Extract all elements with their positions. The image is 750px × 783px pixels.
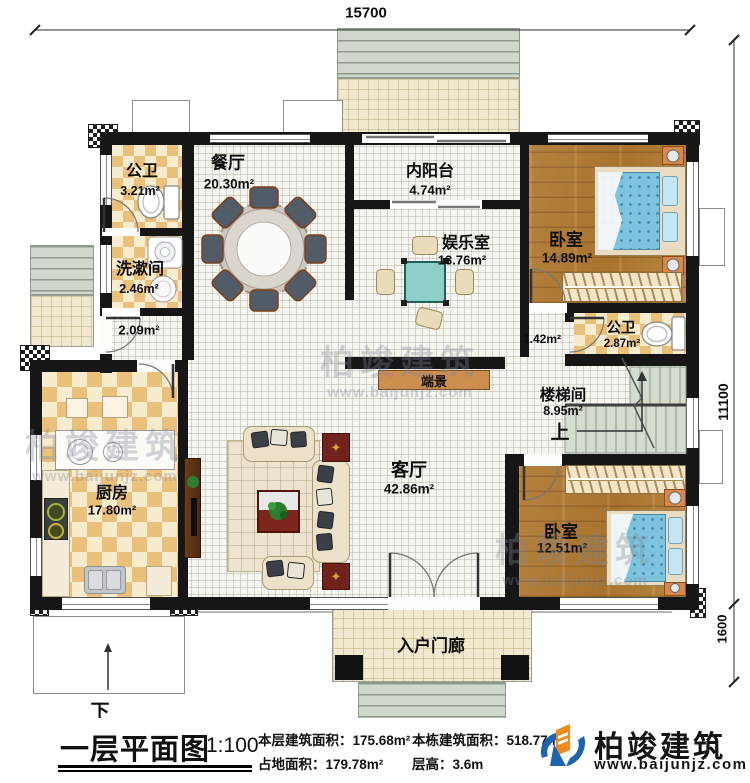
room-area-balcony: 4.74m² (409, 183, 450, 198)
nightstand (664, 489, 686, 507)
door-opening (102, 308, 140, 316)
dim-top-width: 15700 (345, 5, 387, 22)
sink-basin (88, 570, 103, 590)
cutting-board (102, 396, 128, 418)
chair (412, 236, 438, 255)
nightstand (664, 582, 686, 596)
pillow (668, 548, 683, 575)
ac-pad (132, 100, 190, 134)
wall (345, 132, 354, 300)
side-steps (30, 245, 94, 295)
door-opening (137, 360, 175, 372)
console-table: 端景 (378, 370, 490, 390)
room-name-bath1: 公卫 (126, 157, 158, 181)
room-name-recreation: 娱乐室 (442, 229, 490, 253)
site-area-item: 占地面积：179.78m² (258, 753, 383, 773)
window (548, 134, 648, 143)
dim-porch-depth: 1600 (715, 615, 730, 644)
sofa-loveseat (243, 426, 315, 462)
door-opening (529, 303, 567, 313)
kitchen-island (55, 430, 175, 470)
window (30, 435, 42, 480)
end-table: ✦ (322, 433, 350, 462)
room-area-bath1: 3.21m² (120, 184, 160, 198)
title-underline (58, 765, 252, 768)
room-area-recreation: 13.76m² (438, 253, 486, 268)
door-opening (100, 316, 112, 354)
brand-logo-icon (536, 720, 590, 774)
plan-scale: 1:100 (206, 734, 259, 758)
chair (376, 269, 395, 295)
door-opening (388, 597, 480, 610)
wall (182, 132, 194, 360)
chair (455, 269, 474, 295)
pillow (668, 517, 683, 544)
pillow (662, 212, 678, 242)
porch-steps (358, 682, 506, 722)
room-name-bedroom2: 卧室 (544, 518, 578, 543)
room-name-stairwell: 楼梯间 (540, 383, 587, 405)
room-name-dining: 餐厅 (211, 149, 245, 174)
room-name-bath2: 公卫 (607, 317, 636, 338)
footing-line (532, 611, 672, 613)
window (100, 245, 112, 293)
window (310, 597, 388, 610)
window (100, 155, 112, 205)
porch-column (335, 655, 363, 680)
door-opening (102, 228, 140, 236)
wall (565, 313, 574, 322)
sliding-door-opening (362, 134, 510, 143)
room-area-bedroom1: 14.89m² (542, 251, 592, 266)
window (686, 162, 699, 256)
window (686, 398, 699, 448)
floor-area-item: 本层建筑面积：175.68m² (258, 729, 410, 749)
kitchen-cabinet (146, 566, 172, 596)
wall (565, 354, 699, 366)
title-block: 一层平面图 1:100 本层建筑面积：175.68m² 占地面积：179.78m… (0, 718, 750, 783)
room-name-kitchen: 厨房 (96, 479, 128, 503)
cutting-board (66, 398, 88, 418)
brand-website: www.baijunjz.com (594, 756, 747, 773)
wall (520, 132, 529, 357)
stairs-up-label: 上 (550, 418, 569, 445)
driveway-ramp (33, 616, 185, 694)
star-icon: ✦ (331, 570, 342, 583)
title-underline (58, 770, 252, 772)
console-label: 端景 (421, 371, 447, 390)
side-patio (30, 295, 94, 347)
room-area-kitchen: 17.80m² (88, 503, 136, 518)
window (62, 597, 150, 610)
room-area-bedroom2: 12.51m² (537, 541, 587, 556)
room-name-balcony: 内阳台 (406, 157, 454, 181)
stove (44, 498, 68, 540)
room-area-washroom: 2.46m² (119, 282, 159, 296)
room-area-stairwell: 8.95m² (543, 404, 583, 418)
window (210, 134, 310, 143)
window (30, 538, 42, 576)
room-name-porch: 入户门廊 (397, 632, 465, 657)
ac-pad (699, 208, 725, 266)
room-area-dining: 20.30m² (204, 177, 254, 192)
plan-title: 一层平面图 (60, 726, 210, 768)
hall-area-left: 2.09m² (118, 323, 159, 338)
tv (191, 498, 197, 536)
window (686, 506, 699, 584)
porch-column (501, 655, 529, 680)
terrace (337, 78, 520, 135)
footing-line (185, 611, 332, 613)
ac-pad (283, 100, 343, 134)
coffee-table (257, 490, 300, 533)
room-name-washroom: 洗漱间 (116, 255, 164, 279)
room-name-living: 客厅 (391, 456, 427, 482)
ac-pad (699, 430, 723, 484)
wall (505, 454, 519, 597)
room-name-bedroom1: 卧室 (549, 226, 583, 251)
door-opening (524, 454, 562, 466)
window (560, 597, 658, 610)
dim-right-height: 11100 (715, 383, 731, 420)
star-icon: ✦ (331, 441, 342, 454)
wardrobe (562, 272, 682, 302)
sofa-main (312, 460, 350, 563)
sink-basin (106, 570, 121, 590)
pillow (662, 176, 678, 206)
room-area-bath2: 2.87m² (604, 338, 640, 350)
nightstand (662, 146, 684, 165)
floor-plan: 端景 ✦ ✦ (0, 0, 750, 783)
sliding-door-opening (390, 200, 482, 209)
wall (345, 357, 505, 369)
sofa-single (262, 556, 314, 590)
floor-height-item: 层高：3.6m (412, 753, 483, 773)
end-table: ✦ (322, 563, 350, 590)
terrace-steps (337, 28, 520, 78)
hall-area-right: 1.42m² (523, 332, 561, 346)
room-area-living: 42.86m² (384, 482, 434, 497)
